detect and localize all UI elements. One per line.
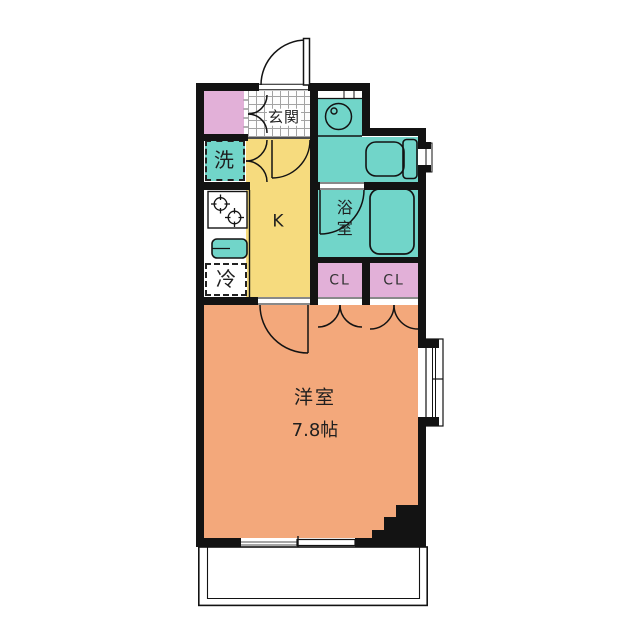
bathroom-label: 浴室 (334, 199, 352, 241)
closet-left-door-arc (318, 305, 340, 327)
entrance-closet-door-arc (248, 95, 267, 114)
washer-label: 洗 (214, 149, 234, 171)
kitchen-fixtures (208, 192, 247, 259)
balcony (199, 547, 427, 605)
closet-left-door-arc (340, 305, 362, 327)
shoe-cabinet-ticks (244, 100, 249, 127)
stove-counter (208, 192, 247, 229)
closet-right-door-arc (370, 305, 394, 329)
kitchen-label: K (272, 213, 283, 232)
wash-basin-icon (326, 104, 352, 130)
side-window-bay (420, 339, 443, 426)
hall-door-arc (272, 140, 310, 178)
vanity-fixtures (318, 91, 362, 130)
balcony-sliding-door (241, 536, 355, 547)
closet-right-label: CL (383, 273, 405, 288)
closet-right-door-arc (394, 305, 418, 329)
floorplan-linework (0, 0, 640, 640)
main-room-label: 洋室 (294, 388, 336, 409)
main-room-size: 7.8帖 (292, 421, 339, 441)
corner-pillar-steps (372, 505, 426, 547)
washer-door-arc (246, 161, 267, 182)
closet-left-label: CL (329, 273, 351, 288)
room-door-arc (260, 305, 308, 353)
floor-plan-canvas: 玄関 洗 K 冷 浴室 CL CL 洋室 7.8帖 (0, 0, 640, 640)
bathtub-icon (370, 189, 414, 254)
entrance-closet-door-arc (248, 114, 267, 133)
entry-door-leaf (304, 39, 310, 86)
fridge-label: 冷 (216, 268, 236, 290)
entrance-label: 玄関 (267, 109, 301, 126)
washer-door-arc (246, 140, 267, 161)
entry-door-arc (261, 40, 306, 85)
toilet-tank-icon (403, 140, 417, 179)
toilet-window (418, 142, 432, 172)
toilet-bowl-icon (366, 142, 404, 176)
toilet-fixture (366, 140, 417, 179)
